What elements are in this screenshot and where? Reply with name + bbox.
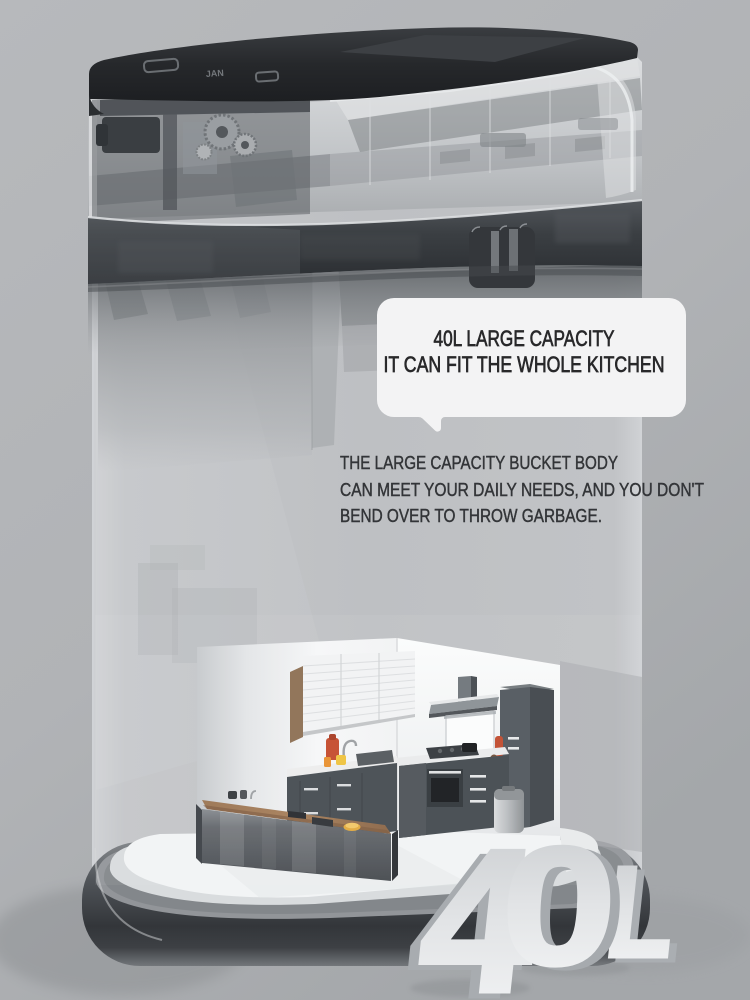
svg-text:40L LARGE CAPACITY: 40L LARGE CAPACITY [434,326,615,351]
svg-text:THE LARGE CAPACITY BUCKET BODY: THE LARGE CAPACITY BUCKET BODY [340,452,618,473]
svg-text:IT CAN FIT THE WHOLE KITCHEN: IT CAN FIT THE WHOLE KITCHEN [384,352,665,377]
svg-text:0: 0 [497,812,621,1000]
svg-text:CAN MEET YOUR DAILY NEEDS, AND: CAN MEET YOUR DAILY NEEDS, AND YOU DON'T [340,479,704,500]
svg-text:JAN: JAN [205,68,224,79]
svg-text:BEND OVER TO THROW GARBAGE.: BEND OVER TO THROW GARBAGE. [340,505,602,526]
